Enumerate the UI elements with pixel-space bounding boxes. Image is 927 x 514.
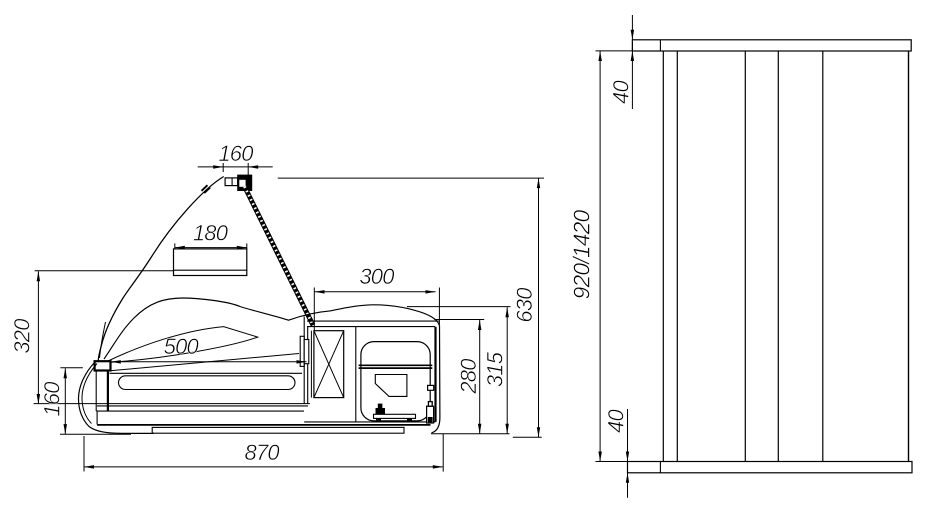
svg-text:300: 300 bbox=[359, 264, 395, 289]
svg-text:500: 500 bbox=[164, 334, 200, 359]
svg-text:40: 40 bbox=[609, 80, 634, 104]
svg-text:160: 160 bbox=[40, 381, 65, 417]
svg-text:920/1420: 920/1420 bbox=[569, 210, 595, 300]
svg-text:180: 180 bbox=[193, 221, 229, 246]
svg-text:160: 160 bbox=[218, 141, 254, 166]
svg-text:40: 40 bbox=[604, 409, 629, 433]
svg-text:315: 315 bbox=[483, 351, 508, 387]
svg-text:870: 870 bbox=[245, 440, 281, 465]
svg-text:320: 320 bbox=[10, 318, 35, 354]
svg-text:630: 630 bbox=[512, 287, 537, 323]
svg-text:280: 280 bbox=[456, 358, 481, 395]
